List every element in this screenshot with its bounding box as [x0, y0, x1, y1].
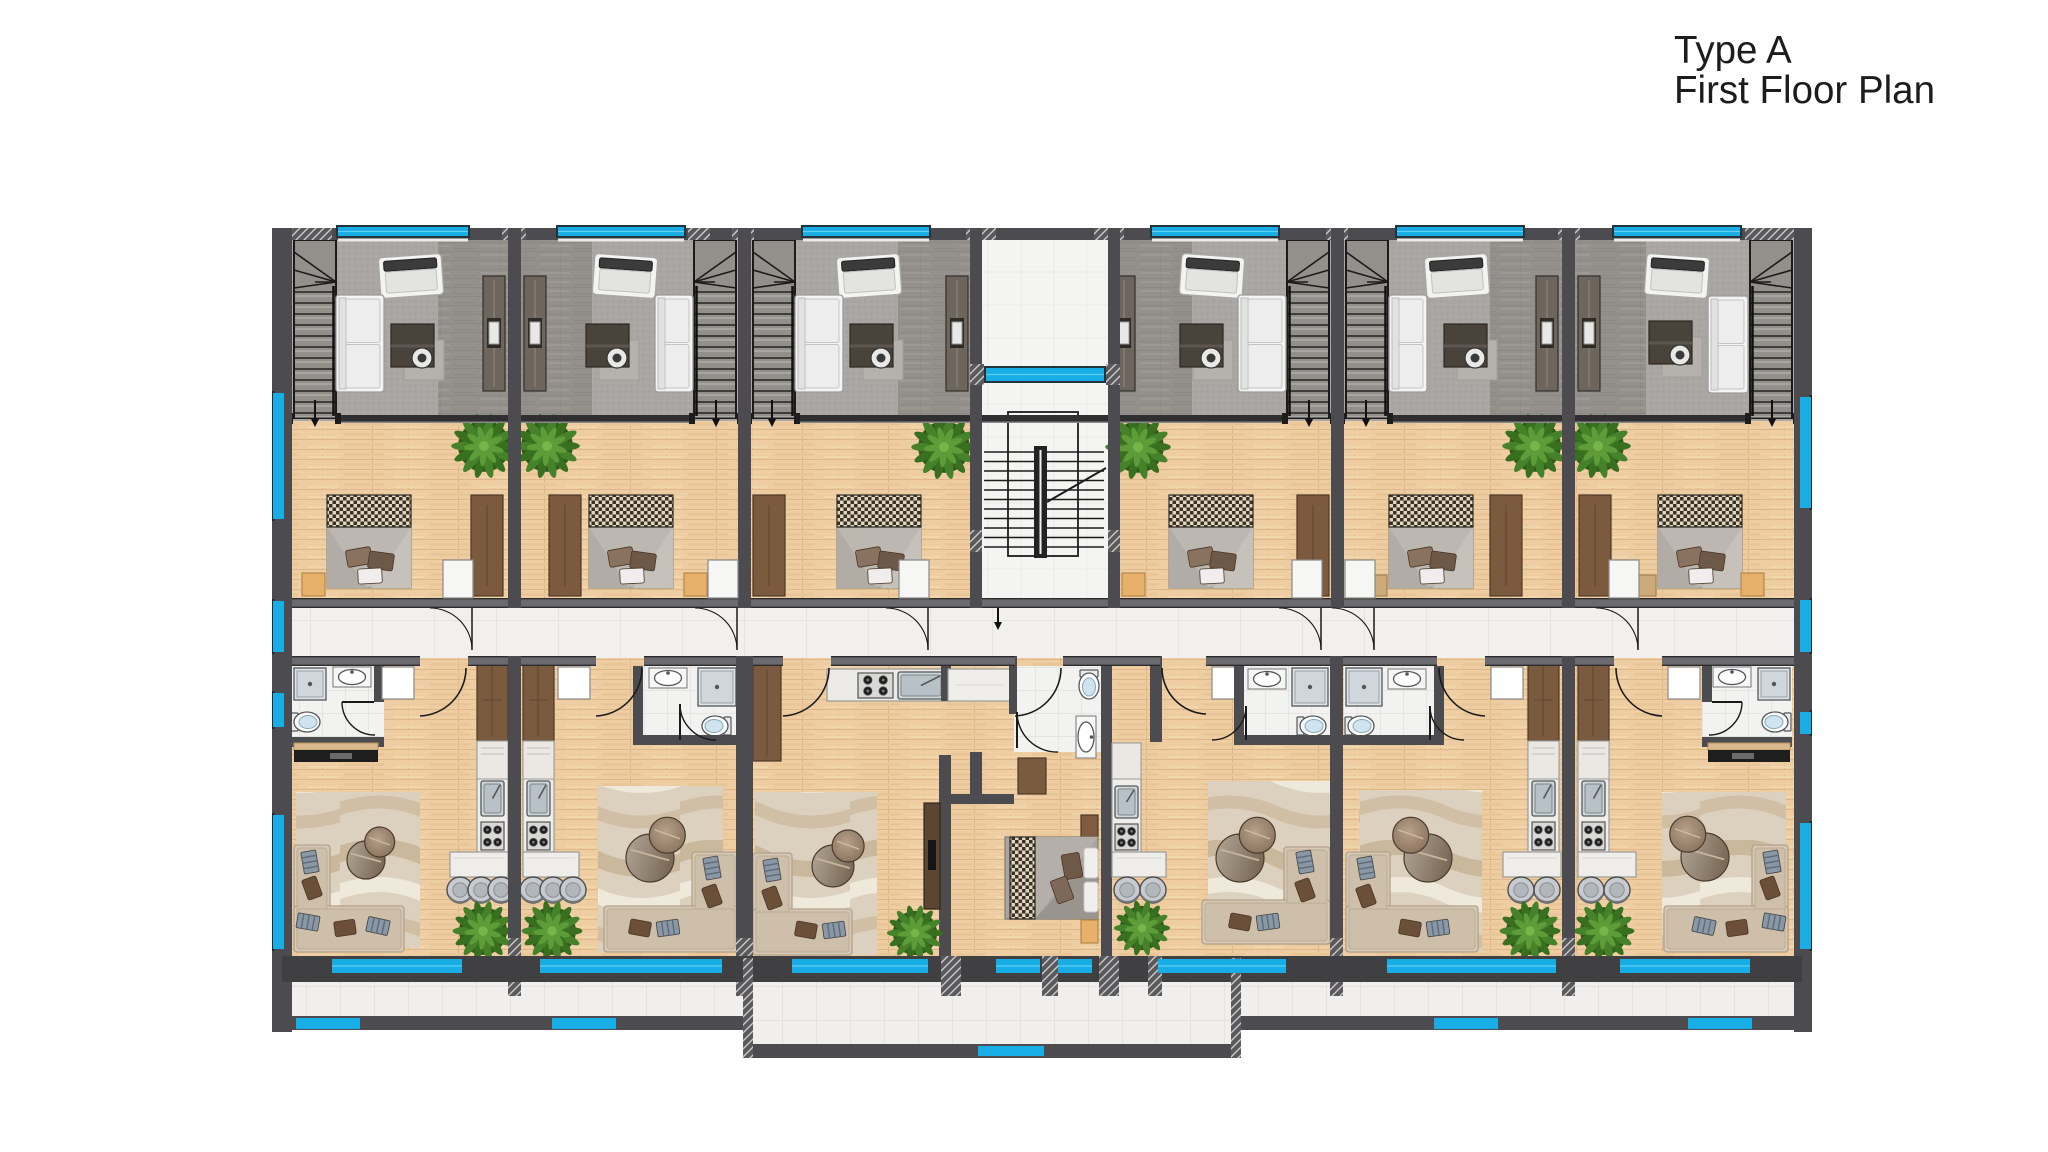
svg-text:First Floor Plan: First Floor Plan: [1674, 69, 1935, 112]
svg-text:Type A: Type A: [1674, 29, 1792, 72]
